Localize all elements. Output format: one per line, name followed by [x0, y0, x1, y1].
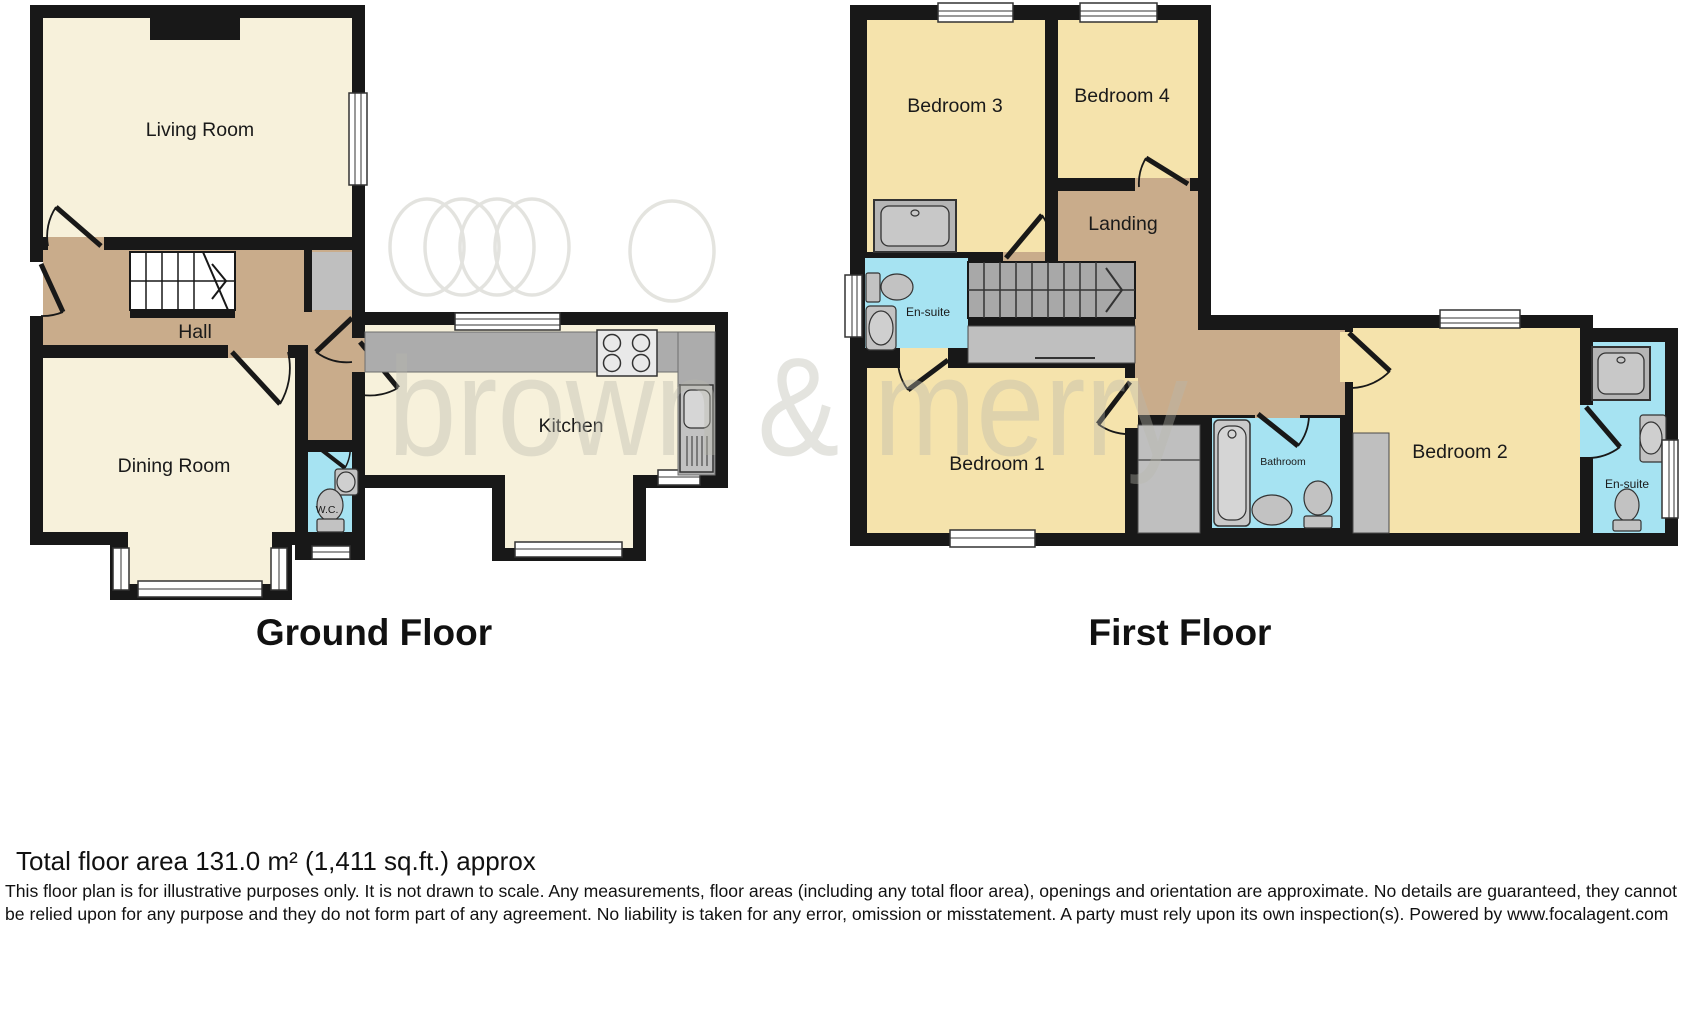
- dining-room-label: Dining Room: [118, 455, 231, 477]
- landing-label: Landing: [1088, 213, 1157, 235]
- stairs-first: [968, 262, 1135, 318]
- bedroom3-label: Bedroom 3: [907, 95, 1002, 117]
- dining-bay-window-right: [271, 548, 287, 590]
- total-floor-area-text: Total floor area 131.0 m² (1,411 sq.ft.)…: [16, 846, 536, 877]
- bathroom-sink-icon: [1252, 495, 1292, 525]
- porch-cupboard: [312, 252, 352, 310]
- ensuite-right-window: [1662, 440, 1678, 518]
- room-dining-room: [43, 358, 295, 532]
- floorplan-page: Living Room Hall Dining Room W.C. Kitche…: [0, 0, 1681, 1016]
- bedroom2-window: [1440, 310, 1520, 328]
- ensuite-right-label: En-suite: [1605, 477, 1649, 491]
- ground-floor-title: Ground Floor: [124, 612, 624, 654]
- bedroom3-window: [938, 3, 1013, 22]
- bedroom2-wardrobe: [1353, 433, 1389, 533]
- porch-wall: [304, 250, 312, 312]
- bedroom2-label: Bedroom 2: [1412, 441, 1507, 463]
- ensuite-left-label: En-suite: [906, 305, 950, 319]
- bay-window-interior: [128, 532, 272, 584]
- toilet-ensuite-right-icon: [1613, 489, 1641, 531]
- bathroom-toilet-icon: [1304, 481, 1332, 528]
- bathroom-label: Bathroom: [1260, 456, 1306, 468]
- watermark-text: brown & merry: [388, 328, 1188, 485]
- wc-window: [312, 546, 350, 559]
- ground-floor-plan: Living Room Hall Dining Room W.C. Kitche…: [30, 5, 728, 600]
- living-room-window: [349, 93, 367, 185]
- toilet-ensuite-left-icon: [866, 273, 913, 302]
- disclaimer-text: This floor plan is for illustrative purp…: [5, 880, 1677, 927]
- shower-right-icon: [1592, 347, 1650, 400]
- bedroom4-label: Bedroom 4: [1074, 85, 1170, 107]
- wc-label: W.C.: [316, 504, 339, 516]
- living-room-label: Living Room: [146, 119, 254, 141]
- bath-icon: [1214, 420, 1250, 526]
- shower-left-icon: [874, 200, 956, 252]
- hall-label: Hall: [178, 321, 212, 343]
- first-floor-title: First Floor: [930, 612, 1430, 654]
- floorplan-drawing: Living Room Hall Dining Room W.C. Kitche…: [0, 0, 1681, 610]
- stairs-ground: [130, 252, 235, 318]
- watermark-rings-icon: [390, 199, 714, 301]
- wc-sink-icon: [335, 469, 358, 495]
- dining-bay-window-front: [138, 581, 262, 597]
- chimney-breast: [150, 5, 240, 40]
- dining-bay-window-left: [113, 548, 129, 590]
- bedroom1-window: [950, 530, 1035, 547]
- bedroom4-window: [1080, 3, 1157, 22]
- bedroom2-door-opening: [1340, 332, 1353, 382]
- kitchen-bay-window: [515, 542, 622, 557]
